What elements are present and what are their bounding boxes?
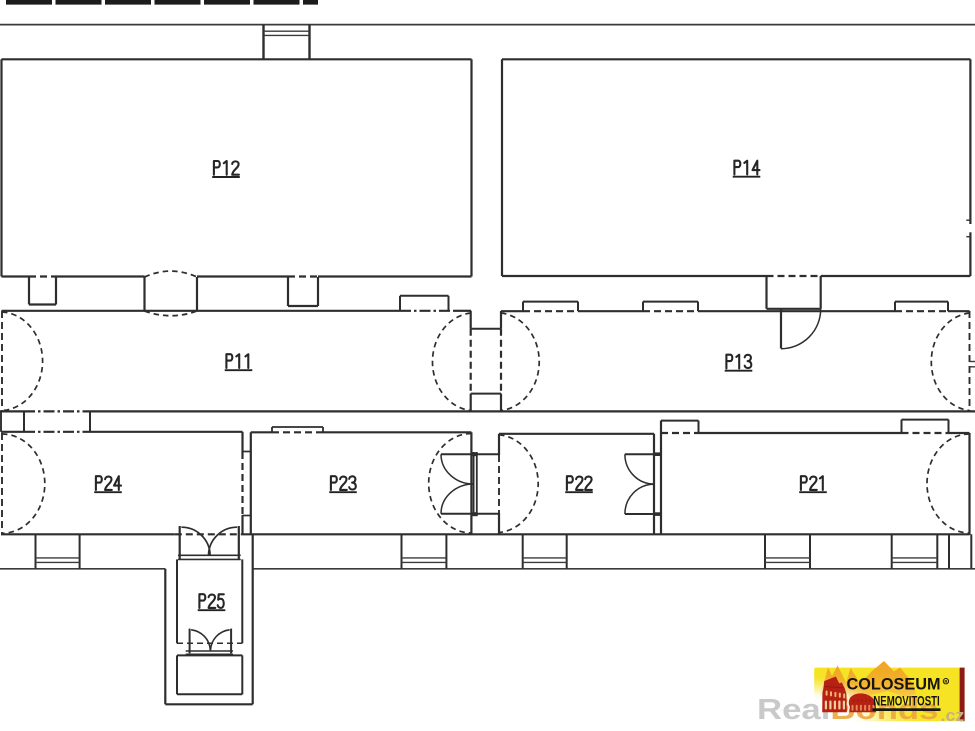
svg-text:NEMOVITOSTI: NEMOVITOSTI: [873, 693, 940, 708]
svg-text:COLOSEUM: COLOSEUM: [847, 676, 941, 694]
svg-text:.cz: .cz: [941, 706, 965, 725]
